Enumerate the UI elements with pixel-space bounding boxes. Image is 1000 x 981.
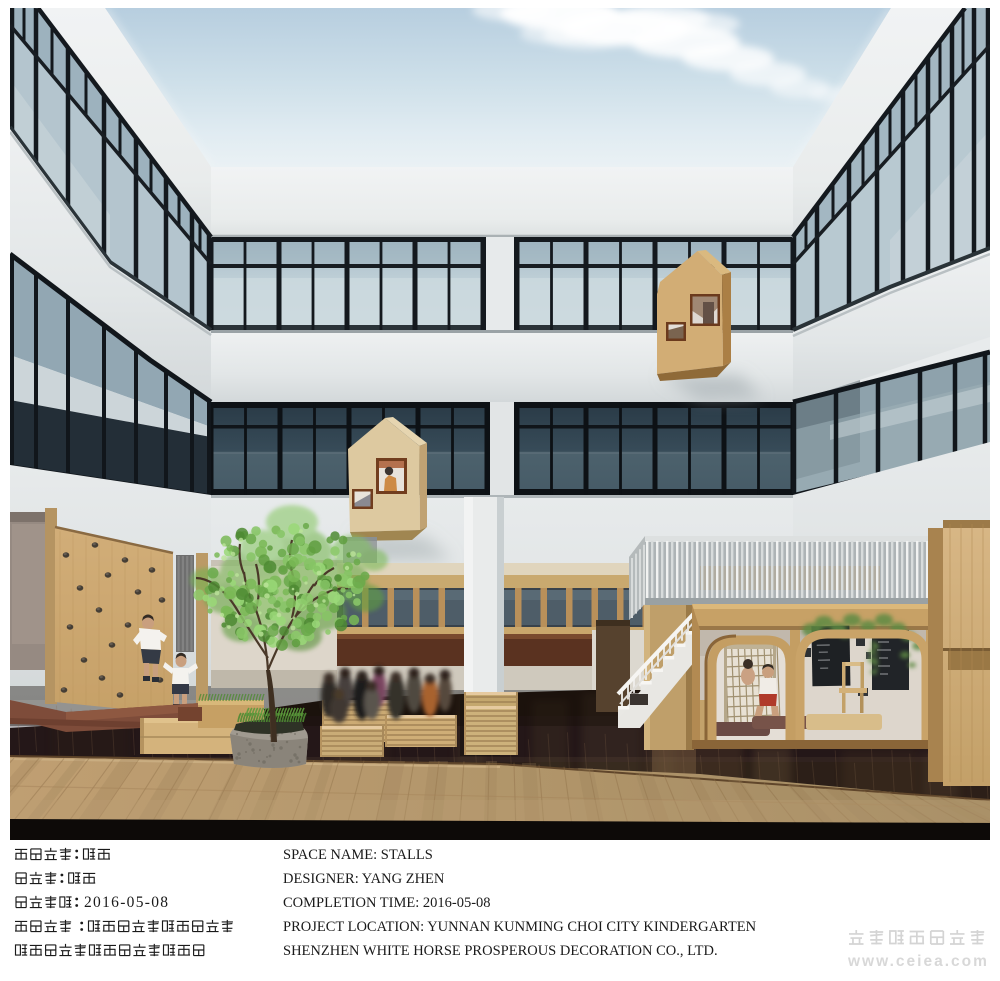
svg-text:COMPLETION TIME: 2016-05-08: COMPLETION TIME: 2016-05-08	[283, 895, 491, 911]
svg-text:SPACE NAME: STALLS: SPACE NAME: STALLS	[283, 847, 433, 863]
svg-text:www.ceiea.com: www.ceiea.com	[847, 953, 989, 970]
svg-text:2016-05-08: 2016-05-08	[84, 894, 169, 911]
svg-text:PROJECT LOCATION: YUNNAN KUNMI: PROJECT LOCATION: YUNNAN KUNMING CHOI CI…	[283, 919, 757, 935]
svg-text:SHENZHEN WHITE HORSE PROSPEROU: SHENZHEN WHITE HORSE PROSPEROUS DECORATI…	[283, 943, 718, 959]
svg-text:DESIGNER: YANG ZHEN: DESIGNER: YANG ZHEN	[283, 871, 445, 887]
